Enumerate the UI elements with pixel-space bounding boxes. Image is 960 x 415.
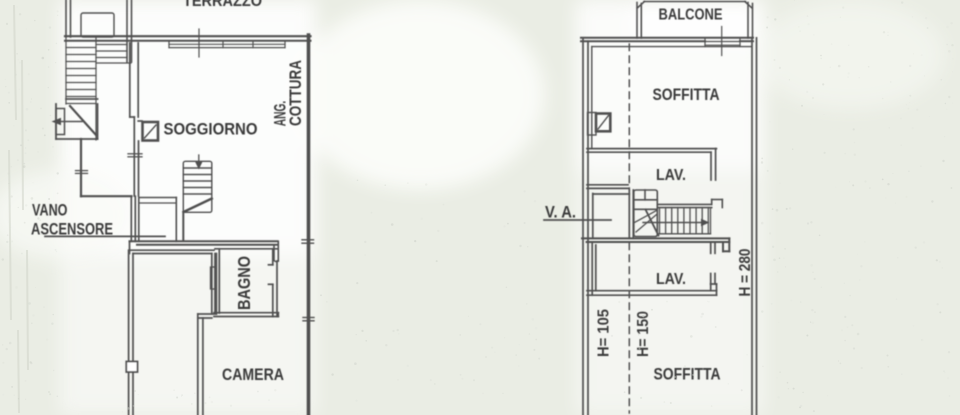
svg-text:LAV.: LAV.: [656, 167, 686, 184]
svg-text:LAV.: LAV.: [656, 271, 686, 288]
svg-text:H= 150: H= 150: [635, 311, 652, 357]
svg-text:H = 280: H = 280: [737, 249, 754, 297]
svg-text:SOGGIORNO: SOGGIORNO: [164, 120, 258, 139]
svg-text:COTTURA: COTTURA: [286, 60, 305, 126]
svg-text:CAMERA: CAMERA: [222, 366, 284, 384]
svg-text:TERRAZZO: TERRAZZO: [183, 0, 262, 10]
svg-text:BALCONE: BALCONE: [659, 7, 723, 24]
svg-text:V. A.: V. A.: [545, 203, 576, 221]
svg-text:SOFFITTA: SOFFITTA: [654, 366, 721, 384]
svg-text:H= 105: H= 105: [596, 309, 613, 357]
svg-text:BAGNO: BAGNO: [234, 256, 254, 310]
svg-text:SOFFITTA: SOFFITTA: [653, 86, 720, 104]
svg-text:VANO: VANO: [32, 202, 68, 220]
